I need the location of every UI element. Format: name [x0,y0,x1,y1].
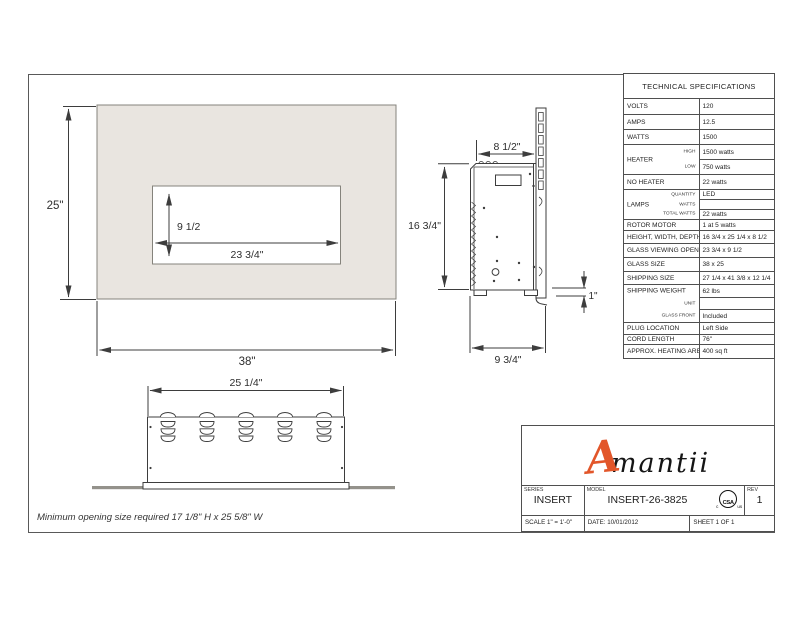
sheet-cell: SHEET 1 OF 1 [690,516,774,531]
brand-logo: Amantii [522,426,774,486]
spec-row-ship-weight: SHIPPING WEIGHT UNIT GLASS FRONT 62 lbs [624,285,775,298]
dim-bottom-width: 25 1/4" [230,377,263,389]
flange-strip [536,108,546,298]
dim-side-depth-bottom: 9 3/4" [494,354,521,366]
spec-row-area: APPROX. HEATING AREA 400 sq ft [624,345,775,359]
bottom-view [92,386,395,489]
spec-row-cord: CORD LENGTH 76" [624,335,775,345]
spec-row-hwd: HEIGHT, WIDTH, DEPTH 16 3/4 x 25 1/4 x 8… [624,231,775,244]
brand-logo-text: mantii [611,452,710,476]
spec-row-lamps-quantity: LAMPS QUANTITY WATTS TOTAL WATTS LED [624,190,775,200]
date-cell: DATE: 10/01/2012 [585,516,691,531]
spec-row-ship-size: SHIPPING SIZE 27 1/4 x 41 3/8 x 12 1/4 [624,272,775,285]
rev-cell: REV 1 [745,486,774,515]
dim-side-depth-top: 8 1/2" [493,141,520,153]
spec-row-plug: PLUG LOCATION Left Side [624,323,775,335]
spec-row-heater-high: HEATER HIGH LOW 1500 watts [624,145,775,160]
dim-side-height: 16 3/4" [408,220,441,232]
spec-table-title: TECHNICAL SPECIFICATIONS [624,74,775,99]
csa-certification-icon: CSA c us [719,490,737,508]
min-opening-note: Minimum opening size required 17 1/8" H … [37,512,262,523]
model-cell: MODEL INSERT-26-3825 CSA c us [585,486,745,515]
series-cell: SERIES INSERT [522,486,585,515]
spec-row-watts: WATTS 1500 [624,130,775,145]
spec-row-rotor: ROTOR MOTOR 1 at 5 watts [624,220,775,231]
spec-row-no-heater: NO HEATER 22 watts [624,175,775,190]
drawing-sheet: 25" 38" 9 1/2 23 3/4" [0,0,800,640]
dim-front-height: 25" [47,200,64,212]
spec-row-viewing: GLASS VIEWING OPENING 23 3/4 x 9 1/2 [624,244,775,258]
dim-front-width: 38" [239,356,256,368]
brand-logo-a: A [584,438,622,477]
dim-side-trim: 1" [589,291,599,302]
title-block: Amantii SERIES INSERT MODEL INSERT-26-38… [521,425,775,532]
spec-row-volts: VOLTS 120 [624,99,775,115]
dim-opening-height: 9 1/2 [177,221,201,233]
scale-cell: SCALE 1" = 1'-0" [522,516,585,531]
spec-table: TECHNICAL SPECIFICATIONS VOLTS 120 AMPS … [623,73,775,359]
control-box [496,175,522,186]
dim-opening-width: 23 3/4" [231,249,264,261]
front-view [60,105,396,356]
base-flange [143,483,349,490]
spec-row-glass-size: GLASS SIZE 38 x 25 [624,258,775,272]
spec-row-amps: AMPS 12.5 [624,115,775,130]
